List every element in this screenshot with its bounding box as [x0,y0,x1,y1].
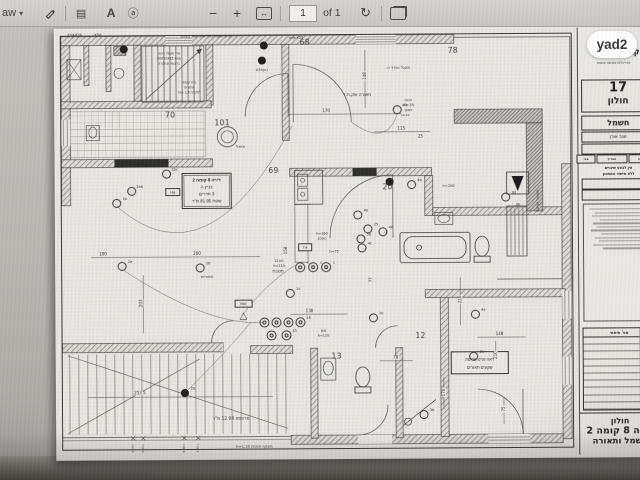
book-view-icon[interactable]: ▤ [74,7,88,20]
project-address-box: 17 חולון [581,79,640,112]
note-line [600,219,640,221]
fit-to-width-icon[interactable]: ↔ [256,7,272,20]
note-line [603,248,640,249]
titleblock: קבוצת גבסו אדריכלות הנדסה וביצוע 17 חולו… [577,27,640,454]
yad2-logo: yad2 [587,31,637,58]
sheet-city: חולון [580,416,640,425]
project-city: חולון [582,96,640,107]
empty-field [582,189,640,200]
note-line [591,230,640,232]
revision-row [584,402,640,410]
note-line [590,208,640,210]
floor-plan-canvas[interactable] [56,29,580,456]
note-line [593,222,640,224]
project-number: 17 [582,80,640,96]
yad2-logo-text: yad2 [597,37,628,52]
note-line [593,244,640,246]
pdf-page[interactable]: דירה 8 קומה 2בניין A3 חדריםשטח 81.95 מ"ר… [54,25,640,461]
rotate-icon[interactable]: ↻ [359,5,373,21]
discipline-label: חשמל [581,115,640,130]
sheet-apartment: דירה 8 קומה 2 [580,425,640,436]
toolbar-separator [381,6,382,21]
general-notes [583,203,640,321]
toolbar-separator [65,6,66,21]
note-line [597,226,640,228]
stamp-row: עדכוןתאריךמס' [581,154,640,163]
note-line [592,215,640,217]
note-line [599,240,640,242]
toolbar-separator [280,6,281,21]
floor-plan[interactable]: דירה 8 קומה 2בניין A3 חדריםשטח 81.95 מ"ר… [56,29,580,456]
zoom-out-icon[interactable]: − [206,5,220,21]
sheet-title-block: חולון דירה 8 קומה 2 חשמל ותאורה [580,412,640,454]
zoom-in-icon[interactable]: + [230,5,244,21]
highlight-pen-icon[interactable] [43,7,57,20]
draw-tool-label: aw [2,7,16,19]
draw-tool-button[interactable]: aw ▾ [2,7,23,19]
engineer-name: שגב אורן [581,131,640,142]
stamp-box: תאריך [597,154,628,163]
read-aloud-icon[interactable]: ⓐ [126,5,140,21]
revision-table: מס' תיאור [583,327,640,410]
page-number-input[interactable]: 1 [289,5,317,22]
change-warning-note: אין לבצע שינויים ללא אישור המתכנן [582,165,640,176]
chevron-down-icon: ▾ [19,9,23,18]
page-count-label: of 1 [323,7,341,19]
stamp-box: עדכון [628,154,640,163]
pdf-toolbar: aw ▾ ▤ A ⓐ − + ↔ 1 of 1 ↻ [0,0,640,27]
save-copy-icon[interactable] [390,7,406,20]
note-line [595,237,640,239]
revision-table-header: מס' תיאור [584,328,640,337]
empty-field [582,178,640,189]
sheet-name: חשמל ותאורה [580,436,640,446]
empty-field [581,143,640,154]
stamp-box: מס' [576,155,595,164]
text-tool-icon[interactable]: A [104,6,118,20]
note-line [595,212,640,214]
note-line [601,233,640,234]
company-subtitle: אדריכלות הנדסה וביצוע [605,61,630,65]
